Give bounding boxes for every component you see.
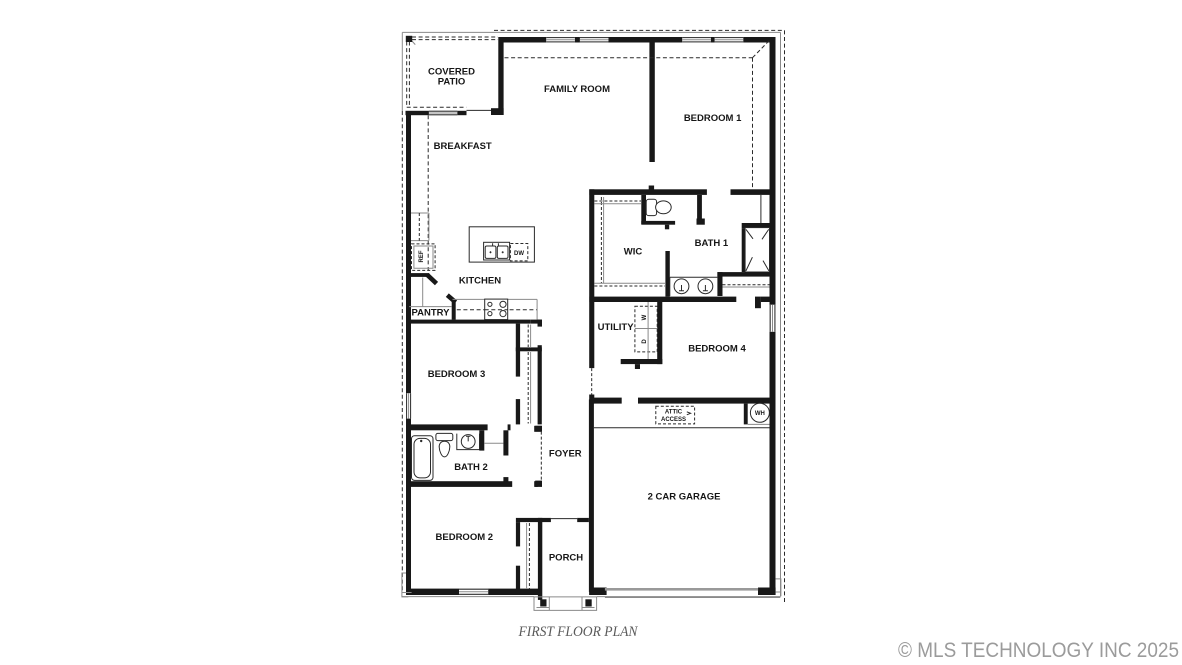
svg-text:REF: REF — [419, 250, 425, 262]
svg-text:2 CAR GARAGE: 2 CAR GARAGE — [648, 491, 721, 502]
svg-text:PORCH: PORCH — [549, 553, 583, 564]
svg-text:© MLS TECHNOLOGY INC 2025: © MLS TECHNOLOGY INC 2025 — [898, 638, 1179, 662]
svg-text:BREAKFAST: BREAKFAST — [434, 141, 492, 152]
svg-text:BEDROOM 3: BEDROOM 3 — [428, 369, 486, 380]
svg-text:D: D — [642, 339, 648, 344]
svg-text:ATTIC: ATTIC — [665, 409, 683, 415]
svg-text:UTILITY: UTILITY — [598, 322, 635, 333]
svg-text:BEDROOM 4: BEDROOM 4 — [688, 343, 746, 354]
svg-text:PATIO: PATIO — [438, 77, 466, 88]
svg-text:FIRST FLOOR PLAN: FIRST FLOOR PLAN — [518, 624, 639, 640]
svg-text:WH: WH — [755, 411, 765, 417]
svg-text:WIC: WIC — [624, 247, 643, 258]
svg-text:BATH 1: BATH 1 — [695, 238, 729, 249]
svg-text:BEDROOM 1: BEDROOM 1 — [684, 113, 742, 124]
svg-text:FOYER: FOYER — [549, 449, 582, 460]
svg-text:ACCESS: ACCESS — [661, 417, 686, 423]
svg-text:W: W — [642, 314, 648, 320]
svg-text:BATH 2: BATH 2 — [454, 462, 488, 473]
svg-text:BEDROOM 2: BEDROOM 2 — [436, 532, 494, 543]
svg-text:PANTRY: PANTRY — [412, 308, 451, 319]
svg-text:KITCHEN: KITCHEN — [459, 276, 501, 287]
svg-text:DW: DW — [514, 251, 524, 257]
svg-text:FAMILY ROOM: FAMILY ROOM — [544, 84, 610, 95]
